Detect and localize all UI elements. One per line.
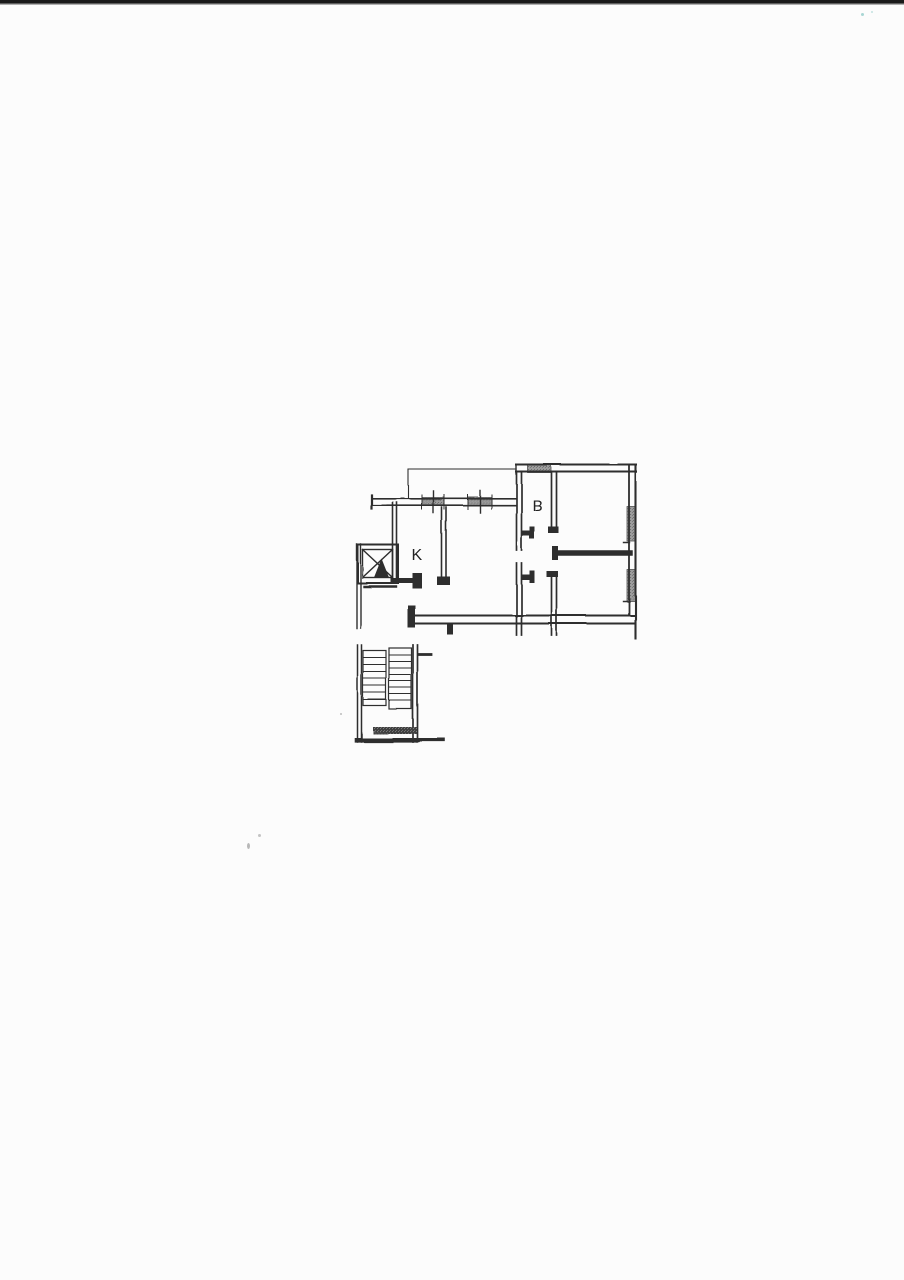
elevator-direction-triangle	[374, 559, 389, 578]
stair-landing-strip	[373, 727, 417, 734]
kitchen-walls	[393, 502, 447, 581]
scanned-page: K B	[0, 0, 904, 1280]
scanner-edge-artifact	[0, 0, 904, 5]
scan-speck	[861, 13, 864, 16]
scan-speck	[340, 713, 342, 715]
scan-speck	[871, 11, 873, 13]
bottom-wall	[411, 616, 635, 624]
floor-plan-drawing: K B	[0, 0, 904, 1280]
scan-speck	[247, 843, 250, 849]
scan-speck	[258, 834, 261, 837]
room-label-kitchen: K	[412, 547, 423, 564]
hallway-left-wall	[517, 472, 522, 636]
balcony-outline	[408, 469, 516, 497]
room-label-bath: B	[532, 498, 543, 515]
stair-flight-right	[389, 648, 412, 709]
stair-flight-left	[363, 651, 386, 706]
